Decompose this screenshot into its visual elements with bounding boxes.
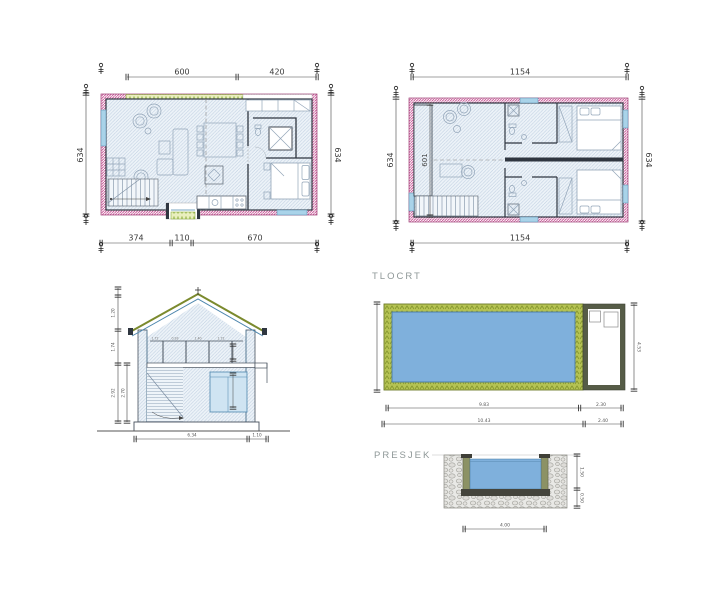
floor-slab (147, 363, 255, 368)
wall-left (138, 330, 147, 422)
dim-label: 634 (76, 147, 85, 162)
dim-label: 420 (269, 68, 284, 77)
dim-label: 110 (174, 234, 189, 243)
axis-marker-icon (625, 242, 630, 253)
dim-label: 1.72 (217, 337, 224, 341)
pool-section: PRESJEK 1.50 0.50 4.00 (374, 450, 585, 529)
window (520, 217, 538, 222)
pool-water (392, 312, 575, 382)
dim-label: 634 (333, 147, 342, 162)
dim-label: 601 (421, 153, 429, 166)
dim-label: 1154 (510, 68, 530, 77)
dim-label: 1.10 (252, 433, 262, 438)
window (409, 193, 414, 211)
axis-marker-icon (315, 242, 320, 253)
coping (461, 454, 472, 458)
spine-wall (505, 158, 623, 162)
ground-floor-plan: 600 420 634 634 374 110 670 (76, 63, 342, 253)
pool-plan: TLOCRT 4.53 9.83 2.30 10.43 2.40 (372, 271, 642, 424)
axis-marker-icon (84, 214, 89, 225)
axis-marker-icon (84, 84, 89, 95)
pool-plan-title: TLOCRT (372, 271, 422, 282)
dim-label: 2.30 (596, 402, 606, 408)
pool-section-title: PRESJEK (374, 450, 431, 461)
upper-floor-plan: 601 1154 1154 634 634 (386, 63, 653, 253)
dim-label: 1.40 (194, 337, 201, 341)
drawing-canvas: 600 420 634 634 374 110 670 (0, 0, 726, 600)
axis-marker-icon (99, 63, 104, 74)
coping (539, 454, 550, 458)
dim-label: 2.92 (111, 388, 116, 398)
axis-marker-icon (410, 242, 415, 253)
dim-label: 4.53 (636, 342, 642, 352)
architectural-sheet: 600 420 634 634 374 110 670 (0, 0, 726, 600)
axis-marker-icon (315, 63, 320, 74)
dim-label: 670 (247, 234, 262, 243)
stairs (416, 196, 478, 216)
stair-void (414, 105, 432, 196)
pool-wall (463, 457, 470, 492)
stairs (147, 368, 184, 423)
dim-label: 4.00 (500, 523, 510, 529)
base-slab (461, 489, 550, 496)
dim-label: 2.40 (598, 418, 608, 424)
dim-label: 1.50 (579, 467, 585, 477)
window (520, 98, 538, 103)
dim-label: 10.43 (478, 418, 491, 424)
ridge-marker (195, 287, 201, 295)
dim-label: 600 (174, 68, 189, 77)
dim-label: 0.50 (579, 493, 585, 503)
dim-label: 6.34 (187, 433, 197, 438)
window (101, 110, 106, 146)
dim-label: 2.70 (121, 388, 126, 398)
axis-marker-icon (410, 63, 415, 74)
equipment (590, 311, 601, 322)
axis-marker-icon (394, 86, 399, 97)
dim-label: 1.72 (151, 337, 158, 341)
dim-label: 1.74 (111, 342, 116, 352)
axis-marker-icon (99, 242, 104, 253)
entrance (166, 203, 200, 219)
house-section: 1.72 0.93 1.40 1.72 1.20 1.74 2.92 2.70 … (97, 287, 290, 439)
dim-label: 634 (644, 152, 653, 167)
axis-marker-icon (329, 84, 334, 95)
pool-water (470, 459, 541, 489)
window (277, 210, 307, 215)
axis-marker-icon (640, 86, 645, 97)
dim-label: 374 (128, 234, 143, 243)
stairs (108, 179, 158, 206)
dim-label: 1154 (510, 234, 530, 243)
dim-label: 9.83 (479, 402, 489, 408)
axis-marker-icon (329, 214, 334, 225)
axis-marker-icon (625, 63, 630, 74)
pool-wall (541, 457, 548, 492)
window (623, 185, 628, 203)
dim-label: 634 (386, 152, 395, 167)
tech-room (583, 304, 625, 390)
window (623, 110, 628, 128)
glazed-door (210, 372, 247, 412)
dim-label: 1.20 (111, 308, 116, 318)
dim-label: 0.93 (171, 337, 178, 341)
foundation (134, 422, 259, 431)
equipment (604, 312, 618, 327)
